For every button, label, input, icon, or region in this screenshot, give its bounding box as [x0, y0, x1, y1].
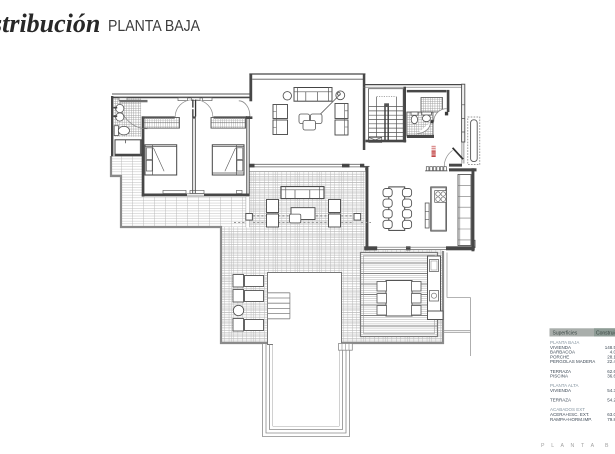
svg-text:VIVIENDA: VIVIENDA	[550, 388, 571, 393]
svg-text:22.4: 22.4	[607, 359, 615, 364]
svg-text:TERRAZA: TERRAZA	[550, 398, 571, 403]
svg-text:54.2: 54.2	[607, 398, 615, 403]
svg-text:RAMPA+HORM.IMP.: RAMPA+HORM.IMP.	[550, 417, 592, 422]
svg-text:PERGOLAS MADERA: PERGOLAS MADERA	[550, 359, 595, 364]
svg-text:PISCINA: PISCINA	[550, 374, 568, 379]
svg-text:Construid: Construid	[596, 330, 615, 336]
svg-text:54.3: 54.3	[607, 388, 615, 393]
svg-text:Superficies: Superficies	[553, 330, 578, 336]
svg-text:79.8: 79.8	[607, 417, 615, 422]
svg-text:36.6: 36.6	[607, 374, 615, 379]
